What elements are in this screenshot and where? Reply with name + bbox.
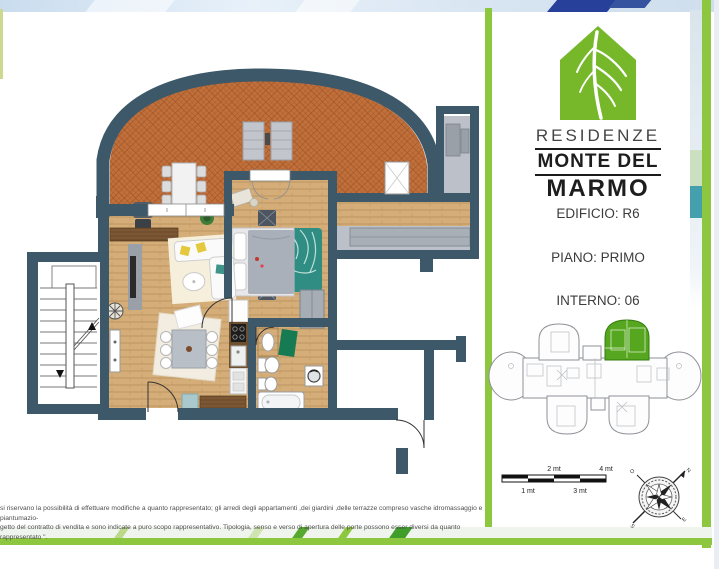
edificio-label: EDIFICIO: R6 <box>497 206 699 221</box>
decor-navy-shape <box>547 0 617 12</box>
washing-machine-icon <box>305 366 323 386</box>
floorplan-brochure-page: RESIDENZE MONTE DEL MARMO EDIFICIO: R6 P… <box>0 0 719 569</box>
landing-floor <box>328 348 428 418</box>
disclaimer-text: si riservano la possibilità di effettuar… <box>0 504 489 542</box>
scale-bar: 2 mt 4 mt 1 mt 3 mt <box>498 460 618 502</box>
tv-icon <box>130 256 136 298</box>
sink-icon <box>231 346 246 366</box>
outdoor-table <box>172 163 196 207</box>
compass-east-label: E <box>681 516 688 523</box>
scale-label-3mt: 3 mt <box>573 488 587 495</box>
page-outer-edge <box>714 0 719 569</box>
scale-label-4mt: 4 mt <box>599 466 613 473</box>
green-right-border <box>702 0 711 548</box>
toilet-icon <box>258 357 279 373</box>
brand-residenze: RESIDENZE <box>497 126 699 146</box>
balcony-french-door <box>148 204 224 216</box>
double-bed <box>232 228 294 296</box>
brand-lockup: RESIDENZE MONTE DEL MARMO <box>497 126 699 201</box>
compass-south-label: S <box>629 523 636 530</box>
disclaimer-line-2: getto del contratto di vendita e sono in… <box>0 523 489 542</box>
ceiling-fan-icon <box>107 303 123 319</box>
brand-monte-del: MONTE DEL <box>535 148 662 176</box>
compass-north-label: N <box>685 467 692 474</box>
piano-label: PIANO: PRIMO <box>497 250 699 265</box>
cooktop-icon <box>231 324 246 342</box>
compass-west-label: O <box>629 468 637 476</box>
compass-rose-icon: N S E O <box>626 460 694 532</box>
apartment-floor-plan <box>0 0 500 520</box>
interno-label: INTERNO: 06 <box>497 293 699 308</box>
brand-leaf-logo-icon <box>552 22 644 124</box>
highlighted-unit <box>605 320 649 360</box>
console-sideboard <box>110 228 178 241</box>
bidet-icon <box>258 377 277 391</box>
scale-label-1mt: 1 mt <box>521 488 535 495</box>
building-key-plan <box>487 318 705 444</box>
washbasin-icon <box>262 333 274 351</box>
decor-navy-shape <box>609 0 652 8</box>
brand-marmo: MARMO <box>497 176 699 201</box>
disclaimer-line-1: si riservano la possibilità di effettuar… <box>0 504 489 523</box>
stairwell <box>38 262 100 404</box>
scale-label-2mt: 2 mt <box>547 466 561 473</box>
radiator <box>110 330 120 372</box>
